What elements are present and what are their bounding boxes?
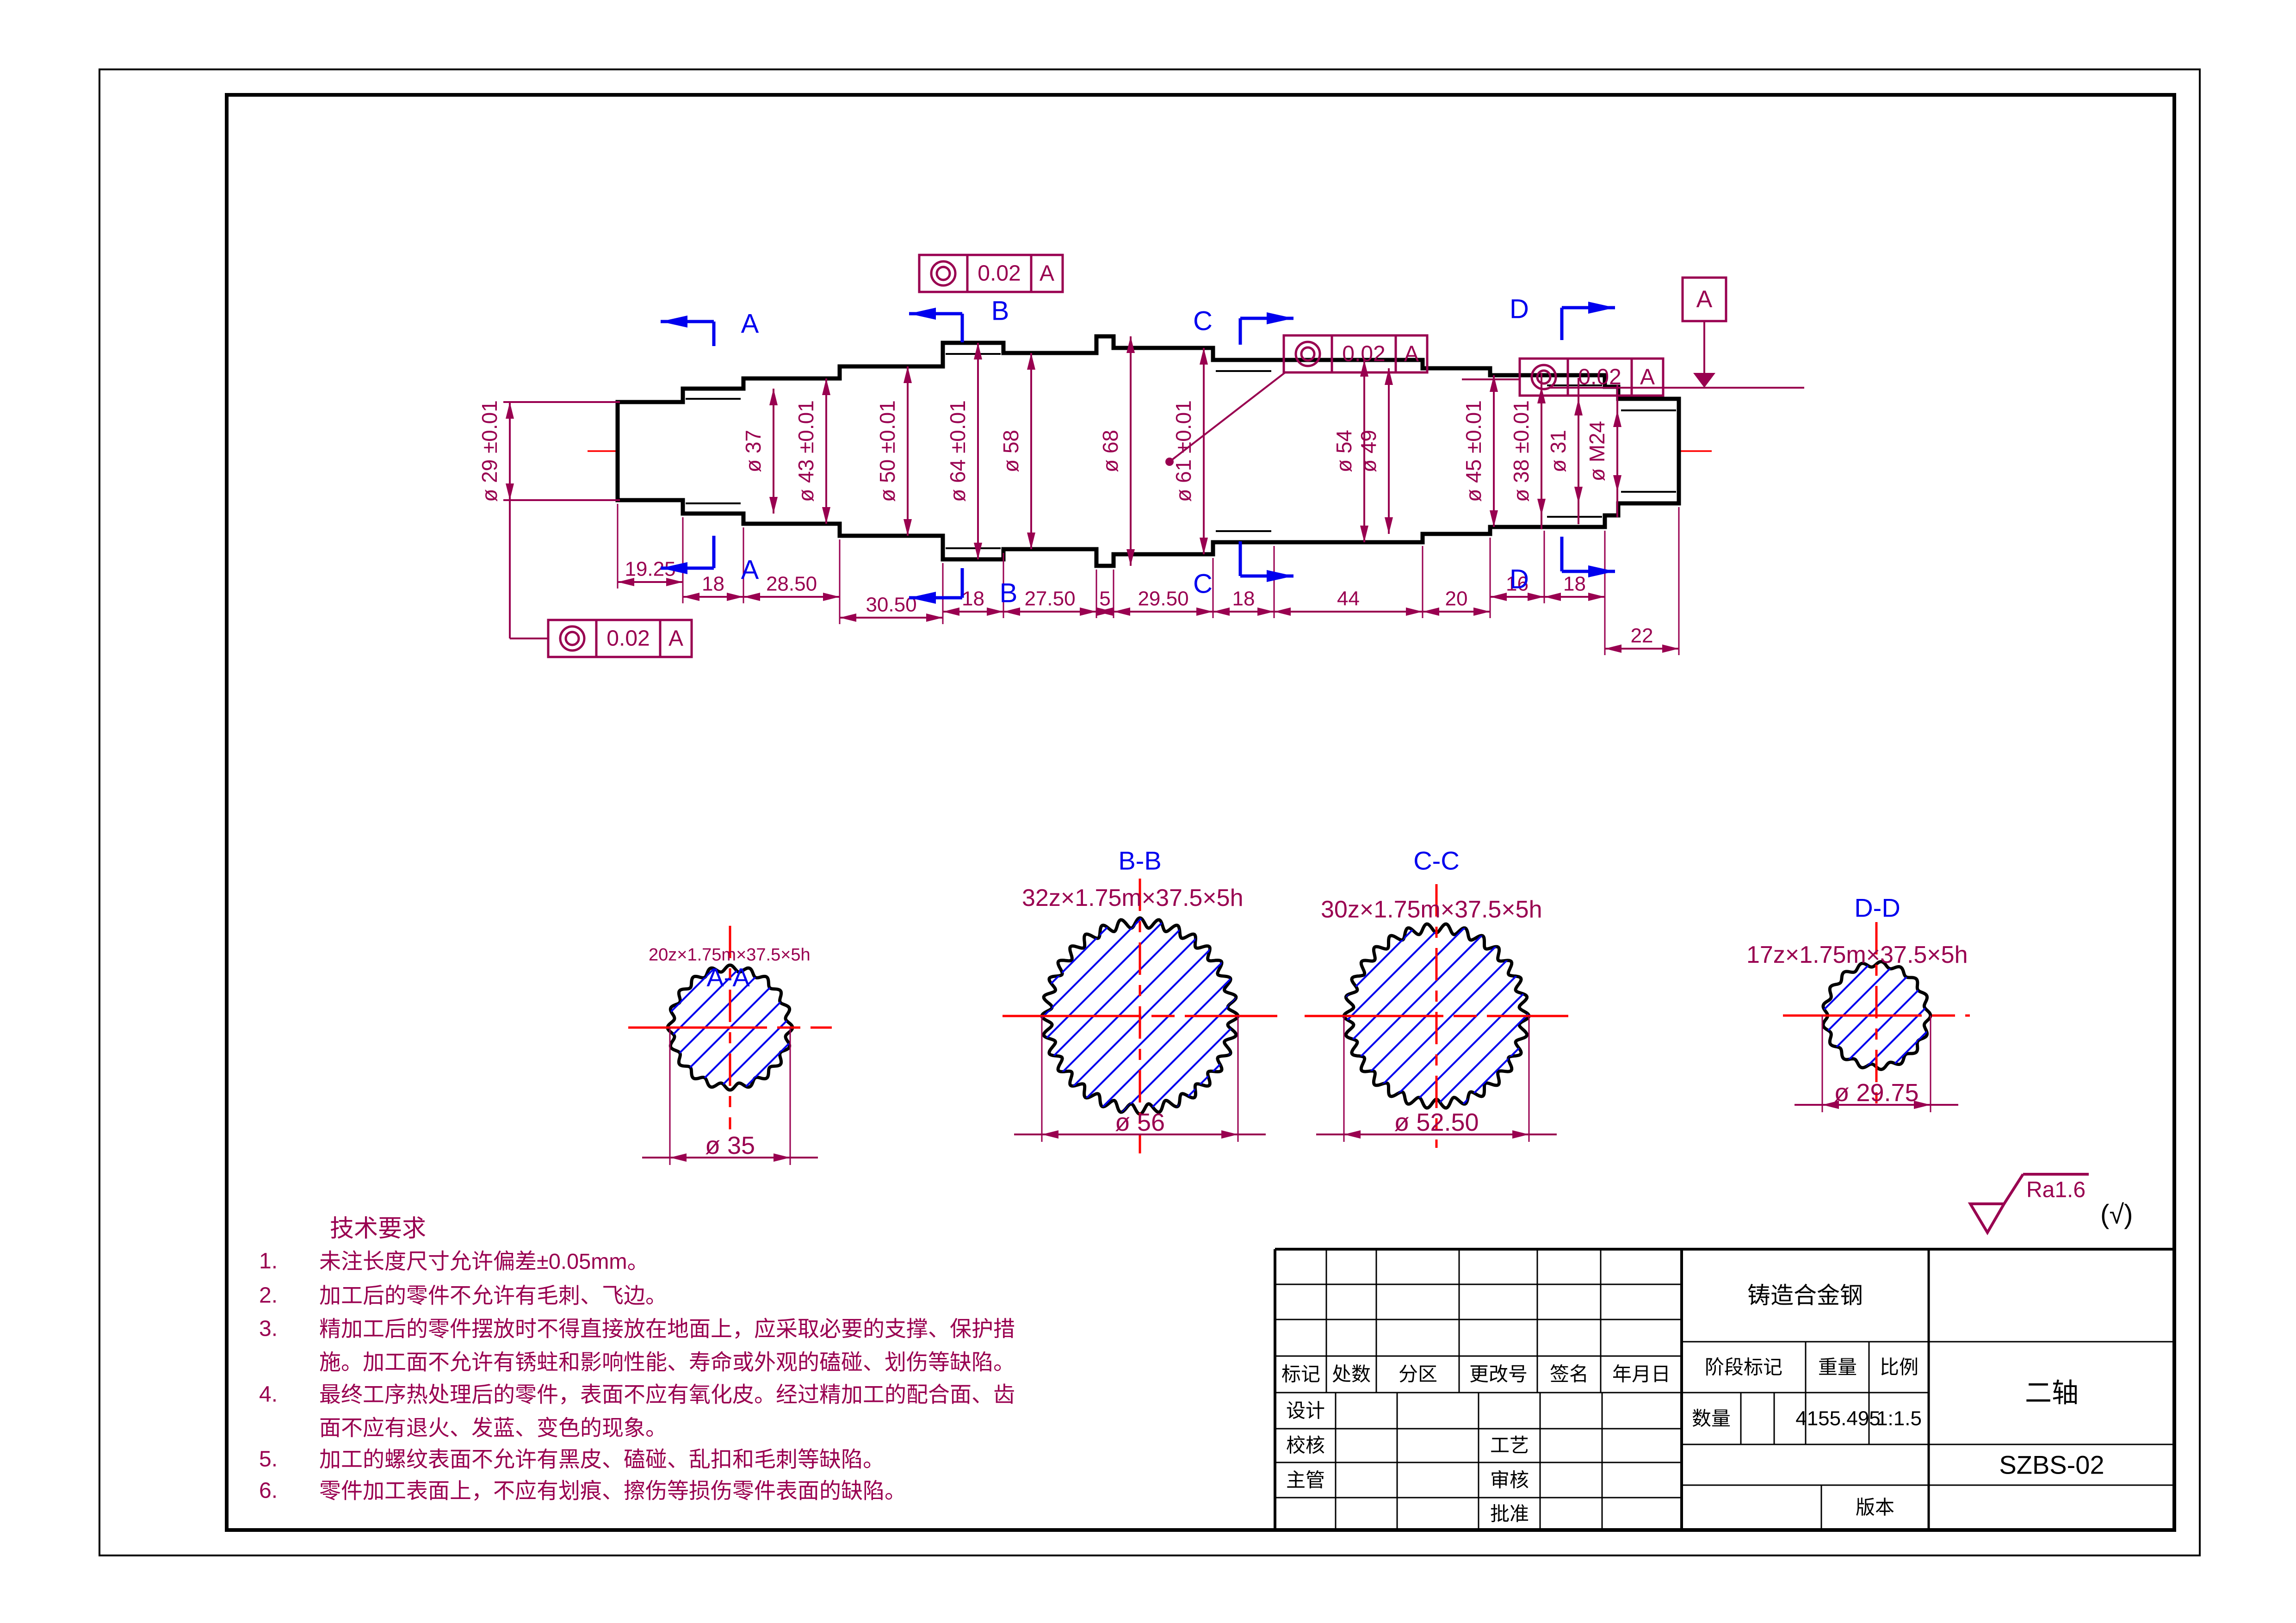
gear-dia-label: ø 35 [705, 1132, 755, 1159]
dim-arrow [943, 607, 959, 616]
title-block-text: 主管 [1286, 1469, 1325, 1491]
dim-arrow [683, 593, 699, 601]
tolerance-datum: A [668, 626, 683, 651]
tech-item-text: 精加工后的零件摆放时不得直接放在地面上，应采取必要的支撑、保护措 [319, 1317, 1015, 1341]
dim-arrow [840, 613, 856, 622]
dia-label: ø 68 [1098, 430, 1122, 472]
concentricity-icon [566, 632, 579, 645]
gear-dia-label: ø 29.75 [1834, 1079, 1918, 1107]
dia-label: ø 37 [741, 430, 765, 472]
dim-arrow [1605, 644, 1621, 653]
dia-label: ø 50 ±0.01 [875, 400, 899, 502]
section-title: B-B [1118, 846, 1161, 875]
tech-item-text: 加工的螺纹表面不允许有黑皮、磕碰、乱扣和毛刺等缺陷。 [319, 1447, 885, 1472]
section-title: C-C [1413, 846, 1460, 875]
dia-label: ø 43 ±0.01 [794, 400, 818, 502]
dim-label: 5 [1099, 588, 1110, 610]
dim-arrow [1080, 607, 1096, 616]
tech-item-number: 2. [259, 1283, 278, 1308]
title-block-text: 签名 [1550, 1363, 1589, 1385]
dia-label: ø 54 [1332, 430, 1356, 472]
dim-arrow [506, 402, 514, 419]
gear-dia-label: ø 56 [1115, 1109, 1165, 1136]
concentricity-icon [937, 267, 950, 280]
leader-dot [1165, 458, 1174, 466]
dia-label: ø 29 ±0.01 [477, 400, 501, 502]
dim-label: 27.50 [1024, 588, 1075, 610]
section-letter: A [741, 309, 759, 339]
title-block-text: 版本 [1856, 1497, 1894, 1518]
gear-dia-label: ø 52.50 [1394, 1109, 1479, 1136]
dim-arrow [727, 593, 743, 601]
tolerance-value: 0.02 [978, 261, 1021, 286]
title-block-text: 1:1.5 [1876, 1407, 1922, 1430]
dim-arrow [1588, 593, 1605, 601]
dim-arrow [987, 607, 1003, 616]
dia-label: ø 64 ±0.01 [946, 400, 970, 502]
title-block-text: 分区 [1399, 1363, 1437, 1385]
gear-spec: 30z×1.75m×37.5×5h [1321, 896, 1542, 923]
section-letter: C [1193, 306, 1213, 336]
dia-label: ø 49 [1356, 430, 1380, 472]
concentricity-icon [560, 626, 584, 650]
section-letter: D [1510, 564, 1529, 595]
dim-arrow [1213, 607, 1230, 616]
gear-spec: 17z×1.75m×37.5×5h [1746, 942, 1968, 968]
section-letter: C [1193, 569, 1213, 599]
gear-spec: 32z×1.75m×37.5×5h [1022, 885, 1244, 911]
tech-item-text: 面不应有退火、发蓝、变色的现象。 [319, 1416, 667, 1440]
section-arrow [1588, 302, 1615, 314]
tech-requirements-title: 技术要求 [330, 1215, 426, 1242]
dim-arrow [1490, 593, 1507, 601]
tech-item-text: 加工后的零件不允许有毛刺、飞边。 [319, 1283, 667, 1308]
title-block-text: 比例 [1880, 1357, 1918, 1378]
tech-item-number: 5. [259, 1447, 278, 1472]
tolerance-datum: A [1040, 261, 1054, 286]
section-letter: A [741, 555, 759, 585]
dim-label: 18 [1232, 588, 1255, 610]
dim-arrow [1196, 607, 1213, 616]
title-block-text: 设计 [1286, 1400, 1325, 1422]
dim-arrow [1126, 549, 1135, 566]
roughness-note: (√) [2100, 1200, 2133, 1230]
dim-label: 20 [1445, 588, 1468, 610]
dim-label: 18 [962, 588, 984, 610]
tech-item-text: 未注长度尺寸允许偏差±0.05mm。 [319, 1249, 649, 1274]
dim-arrow [926, 613, 943, 622]
roughness-check [2004, 1174, 2023, 1204]
tech-item-number: 3. [259, 1317, 278, 1341]
dia-label: ø 45 ±0.01 [1461, 400, 1485, 502]
title-block-text: 二轴 [2025, 1378, 2079, 1408]
title-block-text: 工艺 [1490, 1435, 1529, 1456]
dim-arrow [506, 483, 514, 500]
concentricity-icon [931, 261, 955, 285]
section-arrow [661, 316, 687, 328]
tech-item-number: 4. [259, 1382, 278, 1407]
section-arrow [1267, 312, 1293, 324]
title-block-text: 标记 [1281, 1363, 1320, 1385]
title-block-text: 重量 [1818, 1357, 1857, 1378]
title-block-text: 数量 [1692, 1408, 1731, 1430]
tech-item-text: 最终工序热处理后的零件，表面不应有氧化皮。经过精加工的配合面、齿 [319, 1382, 1015, 1407]
cad-canvas: 19.251828.5030.501827.50529.501844201618… [0, 0, 2296, 1623]
dim-arrow [1512, 1130, 1529, 1139]
dim-arrow [1662, 644, 1679, 653]
tolerance-value: 0.02 [606, 626, 650, 651]
section-letter: B [991, 296, 1009, 326]
section-letter: D [1510, 294, 1529, 324]
dia-label: ø M24 [1585, 421, 1609, 481]
dim-arrow [1344, 1130, 1361, 1139]
section-title: A-A [706, 963, 750, 992]
dia-label: ø 31 [1546, 430, 1570, 472]
dim-label: 44 [1337, 588, 1360, 610]
dim-arrow [1423, 607, 1439, 616]
tech-item-text: 施。加工面不允许有锈蛀和影响性能、寿命或外观的磕碰、划伤等缺陷。 [319, 1350, 1015, 1375]
dim-label: 28.50 [766, 573, 817, 595]
title-block-text: 审核 [1490, 1469, 1529, 1491]
dim-arrow [774, 1153, 790, 1162]
dia-label: ø 38 ±0.01 [1509, 400, 1533, 502]
dim-arrow [1274, 607, 1291, 616]
dim-arrow [1042, 1130, 1058, 1139]
dim-arrow [670, 1153, 687, 1162]
dim-arrow [1003, 607, 1020, 616]
tolerance-value: 0.02 [1342, 342, 1385, 366]
section-letter: B [1000, 578, 1018, 608]
tolerance-value: 0.02 [1578, 365, 1621, 390]
dim-arrow [1126, 336, 1135, 353]
datum-flag-label: A [1696, 286, 1713, 313]
title-block-text: SZBS-02 [1999, 1450, 2104, 1480]
dim-arrow [1221, 1130, 1238, 1139]
section-title: D-D [1854, 893, 1900, 923]
tech-item-number: 1. [259, 1249, 278, 1274]
dim-arrow [1544, 593, 1561, 601]
dim-arrow [743, 593, 760, 601]
dia-label: ø 58 [999, 430, 1023, 472]
dim-arrow [1473, 607, 1490, 616]
title-block-text: 处数 [1332, 1363, 1371, 1385]
dim-arrow [1114, 607, 1130, 616]
section-arrow [1588, 565, 1615, 577]
tolerance-datum: A [1404, 342, 1419, 366]
title-block-text: 4155.495 [1795, 1407, 1881, 1430]
title-block-text: 批准 [1490, 1503, 1529, 1525]
roughness-label: Ra1.6 [2026, 1178, 2086, 1202]
dim-arrow [823, 593, 840, 601]
dim-arrow [1406, 607, 1423, 616]
roughness-triangle [1970, 1204, 2004, 1233]
tolerance-datum: A [1640, 365, 1655, 390]
title-block-text: 更改号 [1469, 1363, 1528, 1385]
dim-arrow [1528, 593, 1544, 601]
dim-label: 22 [1631, 625, 1653, 647]
cad-drawing-page: 19.251828.5030.501827.50529.501844201618… [0, 0, 2296, 1623]
title-block-text: 校核 [1286, 1435, 1325, 1456]
title-block-text: 阶段标记 [1705, 1357, 1782, 1378]
title-block-text: 年月日 [1612, 1363, 1671, 1385]
dim-label: 18 [1563, 573, 1586, 595]
datum-flag-triangle [1693, 373, 1715, 388]
tech-item-text: 零件加工表面上，不应有划痕、擦伤等损伤零件表面的缺陷。 [319, 1479, 906, 1503]
dim-label: 18 [702, 573, 724, 595]
section-arrow [1267, 570, 1293, 582]
dim-arrow [1257, 607, 1274, 616]
title-block-text: 铸造合金钢 [1747, 1282, 1863, 1308]
dim-label: 29.50 [1138, 588, 1188, 610]
gear-spec: 20z×1.75m×37.5×5h [649, 945, 811, 965]
section-arrow [909, 308, 936, 320]
tech-item-number: 6. [259, 1479, 278, 1503]
